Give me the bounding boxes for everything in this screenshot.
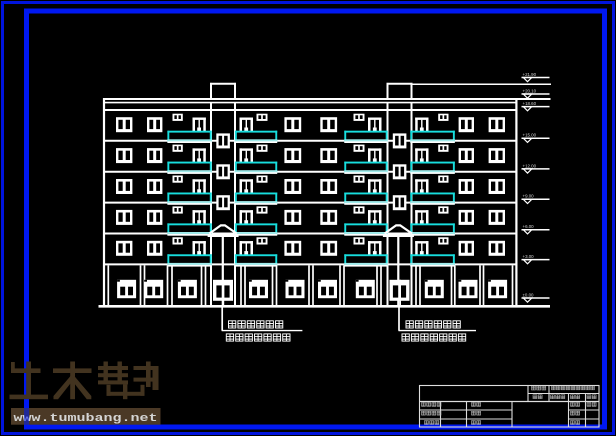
svg-text:+3.00: +3.00 <box>523 254 535 259</box>
svg-text:+21.90: +21.90 <box>523 72 537 77</box>
svg-text:+15.00: +15.00 <box>523 133 537 138</box>
svg-text:www.tumubang.net: www.tumubang.net <box>14 413 158 425</box>
svg-text:+12.00: +12.00 <box>523 163 537 168</box>
svg-text:+18.60: +18.60 <box>523 101 537 106</box>
svg-text:±0.00: ±0.00 <box>523 292 535 297</box>
svg-text:+6.00: +6.00 <box>523 224 535 229</box>
svg-text:+20.10: +20.10 <box>523 88 537 93</box>
svg-text:+9.00: +9.00 <box>523 194 535 199</box>
